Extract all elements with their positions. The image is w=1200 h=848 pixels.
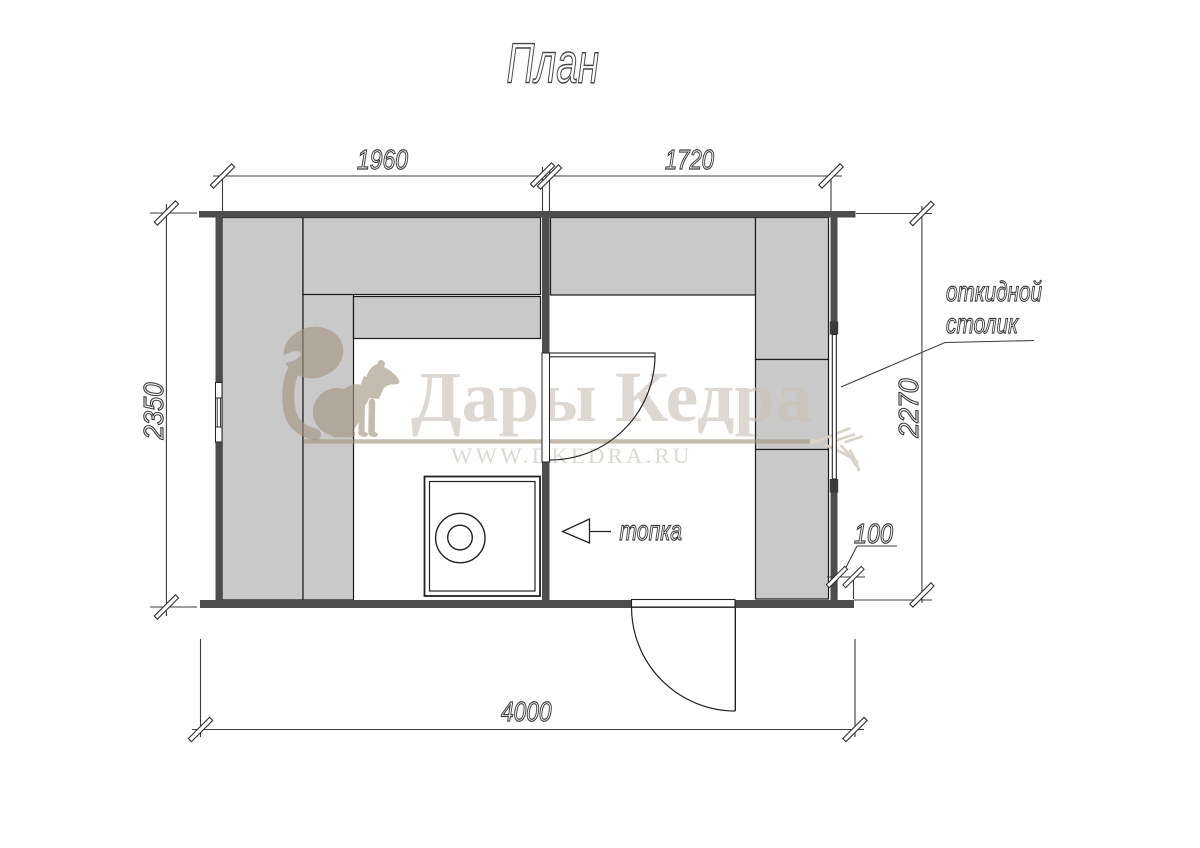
svg-text:WWW.DKEDRA.RU: WWW.DKEDRA.RU bbox=[451, 443, 693, 468]
svg-text:План: План bbox=[507, 32, 600, 96]
svg-text:100: 100 bbox=[854, 518, 893, 549]
svg-text:топка: топка bbox=[620, 515, 683, 546]
svg-text:Дары Кедра: Дары Кедра bbox=[411, 357, 812, 437]
svg-text:4000: 4000 bbox=[501, 696, 552, 727]
svg-text:2270: 2270 bbox=[893, 378, 924, 438]
svg-text:1960: 1960 bbox=[357, 144, 408, 175]
svg-text:2350: 2350 bbox=[138, 382, 169, 440]
svg-text:столик: столик bbox=[946, 308, 1019, 339]
svg-text:1720: 1720 bbox=[665, 144, 714, 175]
svg-text:откидной: откидной bbox=[946, 276, 1042, 307]
